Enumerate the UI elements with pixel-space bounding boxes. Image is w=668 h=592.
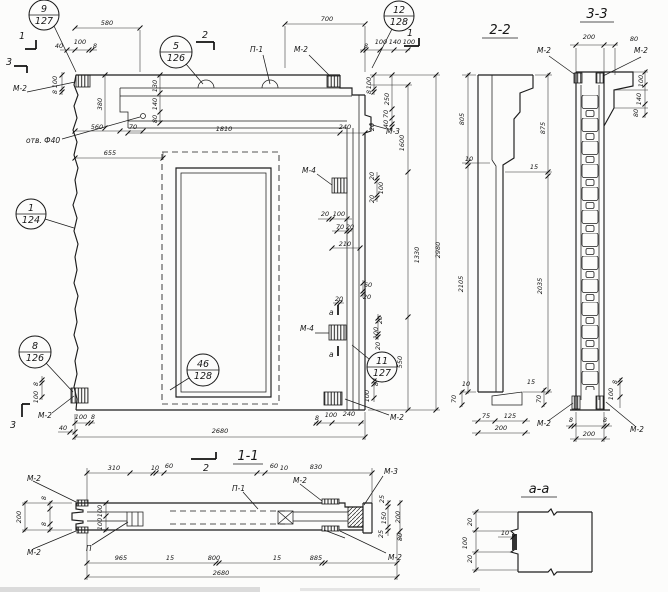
callout-num: 9 [41,4,47,15]
plate-m2-bottom-left [71,388,88,403]
dim-label: 8 [315,414,319,422]
dim-label: 10 [280,464,288,472]
dim-label: 250 [383,93,391,105]
detail-a-a-outline [511,509,592,575]
opening-hidden-outline [162,152,279,404]
dim-label: 80 [151,115,159,123]
dim-label: 40 [59,424,67,432]
dim-label: 800 [208,554,220,562]
dim-label: 210 [339,240,351,248]
plate-m4-upper [332,178,347,193]
dim-label: 20 [466,555,474,563]
section-1-1-title: 1-1 [237,449,258,464]
detail-a-a-view: а-а 20 100 20 10 [461,482,592,575]
dim-label: 60 [270,462,278,470]
mark-p1: П-1 [250,45,263,54]
dim-label: 10 [462,380,470,388]
panel-drawing: 580 40 100 8 700 8 100 140 100 100 8 380… [0,0,668,592]
dim-label: 560 [91,123,103,131]
dim-label: 20 [376,316,384,324]
dim-label: 200 [394,511,402,523]
section-mark-1: 1 [407,28,413,39]
mark-m2: М-2 [293,476,307,485]
dim-label: 240 [343,410,355,418]
dim-label: 8 [40,522,48,526]
section-mark-3: 3 [6,57,12,68]
dim-label: 100 [51,76,59,88]
mark-m2: М-2 [537,46,551,55]
callout-sheet: 127 [35,16,53,27]
dim-label: 200 [495,424,507,432]
dim-label: 70 [535,395,543,403]
dim-label: 20 [321,210,329,218]
scan-smudge [0,587,260,592]
callout-num: 11 [376,356,388,367]
dim-label: 1330 [413,247,421,264]
dim-label: 20 [466,518,474,526]
mark-a: а [329,308,334,317]
dim-label: 20 [363,293,371,301]
section-mark-2: 2 [203,463,209,474]
dim-label: 140 [635,93,643,105]
mark-m2: М-2 [27,548,41,557]
dim-label: 8 [372,382,380,386]
callout-8-126: 8 126 [19,336,73,392]
dim-label: 70 [382,110,390,118]
dim-label: 15 [273,554,281,562]
dim-label: 20 [346,223,354,231]
plate-m2-33-bottom-left [572,396,580,409]
plate-m2-33-top-right [596,73,604,83]
dim-label: 150 [380,512,388,524]
callout-5-126: 5 126 [160,36,203,84]
callout-sheet: 128 [390,17,408,28]
section-2-2-view: 2-2 805 10 2105 875 15 2035 10 70 15 70 … [450,23,573,436]
dim-label: 2105 [457,276,465,293]
opening-frame-inner [181,173,266,392]
dim-label: 8 [364,42,368,50]
dim-label: 875 [539,122,547,134]
mark-m3: М-3 [386,127,400,136]
section-mark-2: 2 [202,30,208,41]
opening-frame-outer [176,168,271,397]
mark-hole: отв. Ф40 [26,136,60,145]
dim-label: 1810 [216,125,233,133]
dim-label: 8 [611,380,619,384]
dim-label: 8 [365,90,373,94]
dim-label: 8 [51,90,59,94]
pier-lines [347,95,359,410]
dim-label: 580 [101,19,113,27]
dim-label: 200 [15,511,23,523]
block-m3 [348,507,363,527]
dim-label: 805 [458,113,466,125]
dim-label: 830 [310,463,322,471]
dim-label: 2980 [434,242,442,259]
callout-num: 5 [173,41,179,52]
mark-a: а [329,350,334,359]
dim-label: 100 [377,182,385,194]
dim-label: 8 [569,416,573,424]
section-1-1-view: 1-1 8 200 8 310 10 60 60 10 830 100 100 … [15,449,404,580]
callout-46-128: 46 128 [170,354,219,390]
mark-m2: М-2 [294,45,308,54]
mark-m4: М-4 [300,324,314,333]
dim-label: 100 [637,75,645,87]
section-2-2-profile [478,75,533,392]
dim-label: 75 [482,412,490,420]
sill-block [492,392,522,405]
weld-tab [512,534,517,550]
mark-m2: М-2 [38,411,52,420]
mark-p: П [86,544,92,553]
dim-label: 10 [501,529,509,537]
dim-label: 240 [339,123,351,131]
dim-label: 15 [166,554,174,562]
callout-sheet: 126 [167,53,185,64]
dim-label: 15 [527,378,535,386]
plate-m2-top [327,76,340,87]
plate-m2-11-top-right [322,499,339,504]
callout-sheet: 128 [194,371,212,382]
dim-label: 80 [632,109,640,117]
dim-label: 2680 [212,427,229,435]
section-3-3-title: 3-3 [586,7,607,22]
dim-label: 885 [310,554,322,562]
dim-label: 70 [129,123,137,131]
dim-label: 2035 [536,278,544,295]
dim-label: 100 [333,210,345,218]
dim-label: 140 [151,98,159,110]
mark-p1: П-1 [232,484,245,493]
dim-label: 8 [603,416,607,424]
mark-m2: М-2 [390,413,404,422]
hollow-cores [580,95,600,390]
dim-label: 8 [40,496,48,500]
dim-label: 130 [151,80,159,92]
dim-label: 100 [365,77,373,89]
dim-label: 655 [104,149,116,157]
panel-rough-edge [73,75,78,410]
dim-label: 80 [396,533,404,541]
dim-label: 10 [151,464,159,472]
dim-label: 8 [32,382,40,386]
dim-label: 140 [389,38,401,46]
plate-m2-bottom-right [324,392,342,405]
callout-1-124: 1 124 [16,199,74,229]
plate-m2-33-bottom-right [596,396,604,409]
mark-m2: М-2 [13,84,27,93]
dim-label: 100 [403,38,415,46]
dim-label: 965 [115,554,127,562]
callout-num: 12 [393,5,405,16]
mark-m3: М-3 [384,467,398,476]
callout-sheet: 127 [373,368,391,379]
dim-label: 700 [321,15,333,23]
dim-label: 100 [74,38,86,46]
hole-f40 [141,114,146,119]
callout-sheet: 126 [26,353,44,364]
dim-label: 10 [465,155,473,163]
plate-m4-lower [329,325,346,340]
detail-a-a-title: а-а [529,482,550,497]
dim-label: 20 [374,342,382,350]
dim-label: 25 [378,495,386,503]
dim-label: 310 [108,464,120,472]
dim-label: 20 [335,295,343,303]
mark-m2: М-2 [634,46,648,55]
dim-label: 70 [336,223,344,231]
dim-label: 100 [461,537,469,549]
dim-label: 60 [165,462,173,470]
dim-label: 100 [607,388,615,400]
dim-label: 20 [368,172,376,180]
mark-m4: М-4 [302,166,316,175]
callout-num: 8 [32,341,38,352]
dim-label: 2680 [213,569,230,577]
section-3-3-outline [570,72,633,410]
plate-m2-top-left [76,75,90,87]
anchor-channel [127,512,143,526]
section-3-3-view: 3-3 200 80 100 140 80 8 100 8 8 200 М-2 … [537,7,648,442]
dim-label: 60 [364,281,372,289]
dim-label: 380 [96,98,104,110]
section-mark-1: 1 [19,31,25,42]
scan-smudge [300,588,480,591]
dim-label: 100 [372,327,380,339]
dim-label: 8 [93,42,97,50]
dim-label: 100 [96,518,104,530]
dim-label: 1600 [398,135,406,152]
plate-m2-33-top-left [574,73,582,83]
mark-m2: М-2 [630,425,644,434]
dim-label: 20 [368,195,376,203]
section-2-2-title: 2-2 [489,23,510,38]
callout-num: 1 [28,203,34,214]
drawing-sheet: 580 40 100 8 700 8 100 140 100 100 8 380… [0,0,668,592]
callout-sheet: 124 [22,215,40,226]
dim-label: 100 [325,411,337,419]
plate-m2-11-bottom-left [77,527,88,533]
dim-label: 20 [368,123,376,131]
dim-label: 100 [96,505,104,517]
dim-label: 15 [530,163,538,171]
dim-label: 200 [583,33,595,41]
mark-m2: М-2 [388,553,402,562]
dim-label: 8 [91,413,95,421]
dim-label: 200 [583,430,595,438]
dim-label: 100 [32,391,40,403]
dim-label: 100 [363,390,371,402]
plate-m2-11-top-left [77,500,88,506]
dim-label: 25 [377,530,385,538]
callout-num: 46 [197,359,209,370]
dim-label: 80 [630,35,638,43]
dim-label: 100 [75,413,87,421]
dim-label: 70 [450,395,458,403]
callout-9-127: 9 127 [29,0,76,72]
section-mark-3: 3 [10,420,16,431]
dim-label: 125 [504,412,516,420]
